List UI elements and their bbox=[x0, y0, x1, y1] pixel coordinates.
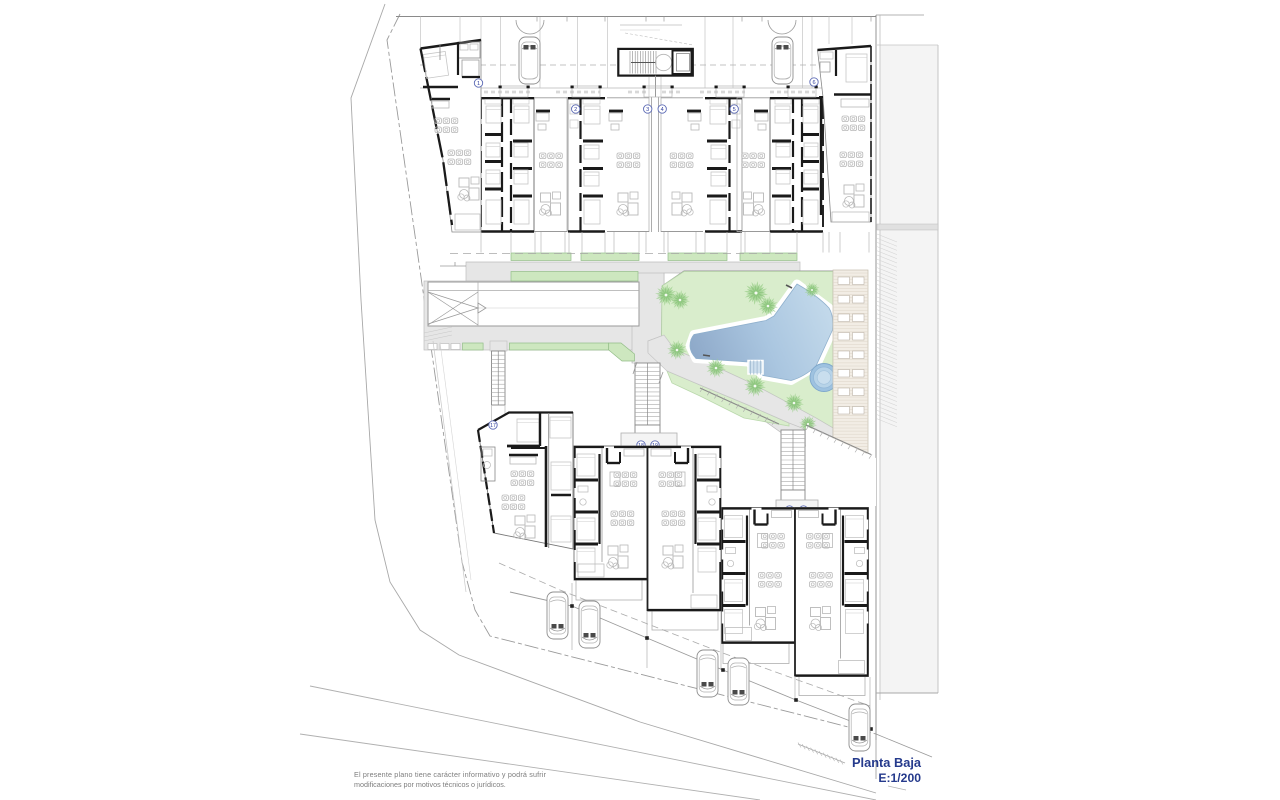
svg-text:3: 3 bbox=[646, 107, 649, 113]
svg-text:1: 1 bbox=[477, 81, 480, 87]
svg-text:5: 5 bbox=[733, 107, 736, 113]
svg-text:Planta Baja: Planta Baja bbox=[852, 755, 922, 770]
svg-text:E:1/200: E:1/200 bbox=[878, 771, 921, 785]
svg-text:El presente plano tiene caráct: El presente plano tiene carácter informa… bbox=[354, 770, 547, 779]
svg-text:17: 17 bbox=[490, 423, 496, 429]
svg-text:modificaciones por motivos téc: modificaciones por motivos técnicos o ju… bbox=[354, 780, 506, 789]
svg-text:4: 4 bbox=[661, 107, 664, 113]
svg-text:2: 2 bbox=[574, 107, 577, 113]
svg-text:6: 6 bbox=[812, 80, 815, 86]
